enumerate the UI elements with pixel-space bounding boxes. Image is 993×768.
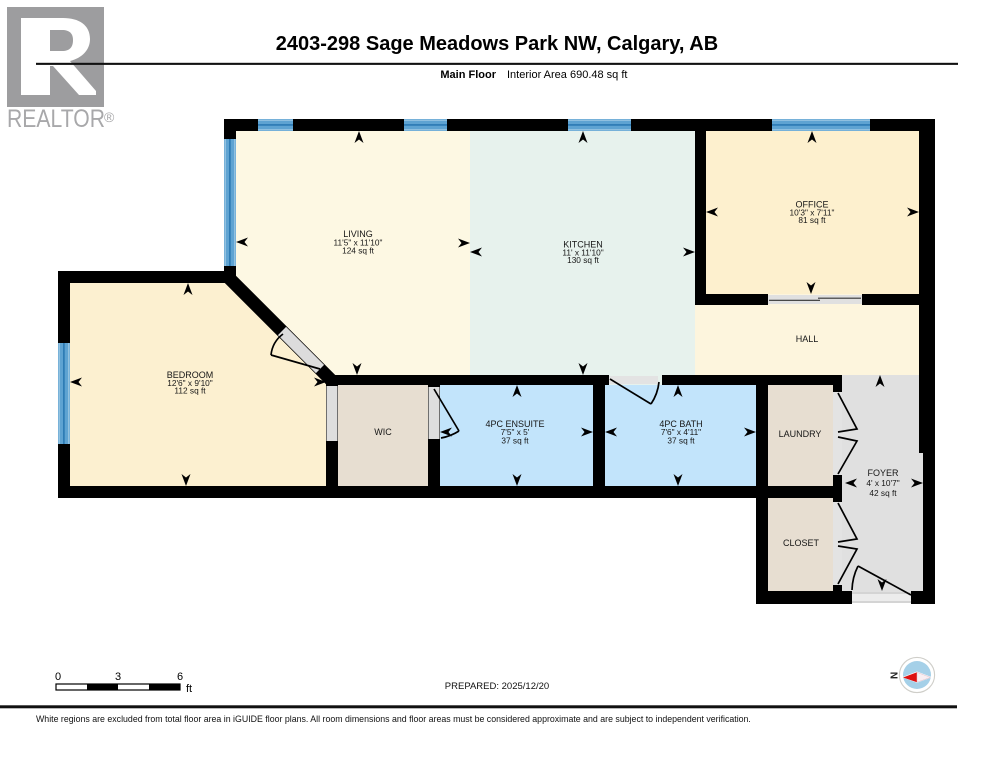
svg-text:81 sq ft: 81 sq ft (798, 215, 826, 225)
svg-text:WIC: WIC (374, 427, 392, 437)
svg-text:PREPARED: 2025/12/20: PREPARED: 2025/12/20 (445, 681, 549, 692)
svg-text:FOYER: FOYER (867, 468, 899, 478)
svg-text:REALTOR: REALTOR (7, 105, 105, 133)
svg-text:4' x 10'7": 4' x 10'7" (866, 478, 899, 488)
svg-text:124 sq ft: 124 sq ft (342, 246, 375, 256)
svg-text:2403-298 Sage Meadows Park NW,: 2403-298 Sage Meadows Park NW, Calgary, … (276, 33, 718, 55)
svg-text:6: 6 (177, 671, 183, 683)
svg-text:HALL: HALL (796, 334, 819, 344)
svg-text:CLOSET: CLOSET (783, 538, 820, 548)
svg-text:N: N (890, 672, 901, 679)
svg-text:Main Floor: Main Floor (440, 69, 496, 81)
svg-text:0: 0 (55, 671, 61, 683)
svg-text:37 sq ft: 37 sq ft (667, 436, 695, 446)
svg-text:3: 3 (115, 671, 121, 683)
svg-text:LAUNDRY: LAUNDRY (779, 429, 822, 439)
svg-text:112 sq ft: 112 sq ft (174, 386, 206, 396)
svg-text:130 sq ft: 130 sq ft (567, 255, 600, 265)
svg-text:Interior Area 690.48 sq ft: Interior Area 690.48 sq ft (507, 69, 627, 81)
svg-text:ft: ft (186, 683, 192, 695)
svg-text:42 sq ft: 42 sq ft (869, 488, 897, 498)
svg-text:®: ® (104, 109, 115, 125)
svg-text:37 sq ft: 37 sq ft (501, 436, 529, 446)
svg-text:White regions are excluded fro: White regions are excluded from total fl… (36, 714, 751, 724)
